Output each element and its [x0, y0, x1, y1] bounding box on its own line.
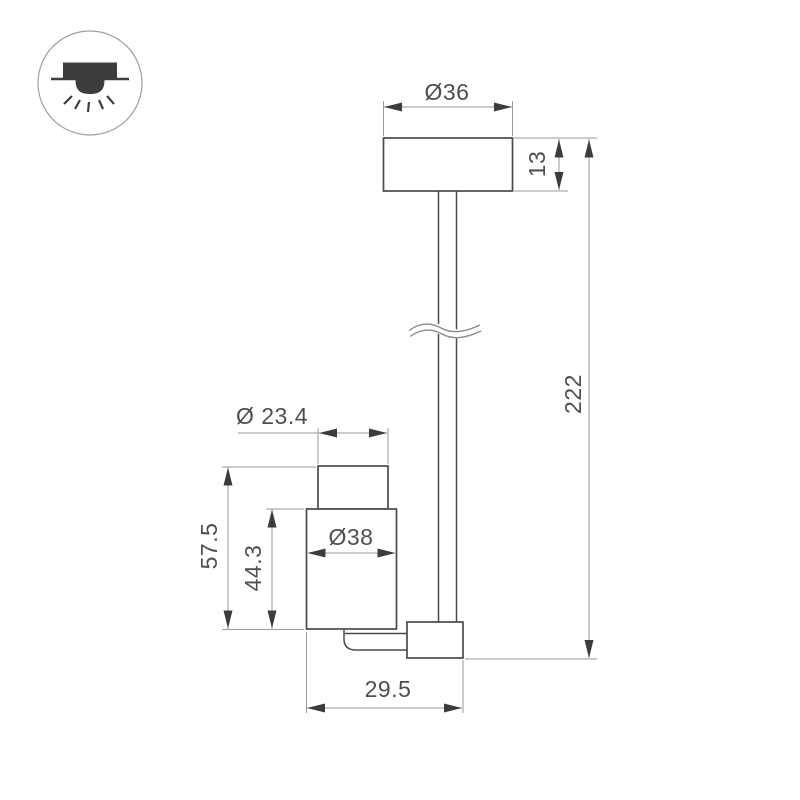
rod-connector-block [407, 622, 463, 658]
elbow-arm [344, 630, 407, 650]
mount-type-badge [38, 31, 142, 135]
head-top-cylinder [318, 466, 388, 509]
fixture-outline [307, 138, 513, 658]
label-head-body-height: 44.3 [240, 545, 266, 592]
label-head-total-height: 57.5 [196, 523, 222, 570]
label-canopy-height: 13 [524, 151, 550, 178]
dimension-drawing: Ø36 13 222 Ø 23.4 Ø38 57.5 44.3 29.5 [0, 0, 800, 800]
rod-break-symbol [408, 324, 481, 338]
label-canopy-diameter: Ø36 [425, 79, 470, 105]
label-head-top-diameter: Ø 23.4 [236, 403, 308, 429]
icon-housing [63, 63, 117, 79]
label-base-width: 29.5 [365, 676, 412, 702]
label-head-body-diameter: Ø38 [329, 524, 374, 550]
dimension-drawing-page: Ø36 13 222 Ø 23.4 Ø38 57.5 44.3 29.5 [0, 0, 800, 800]
ceiling-canopy [384, 138, 513, 191]
label-suspension-length: 222 [560, 374, 586, 414]
